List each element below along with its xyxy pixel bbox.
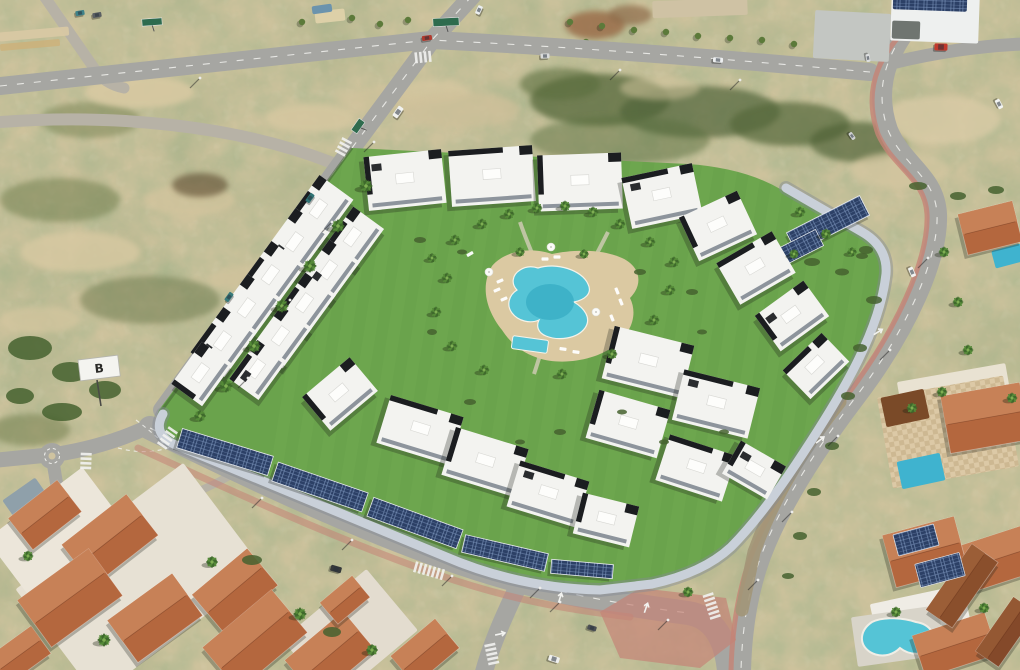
car-glass: [78, 11, 82, 15]
building-parapet-corner: [519, 145, 533, 155]
billboard-logo-letter: B: [94, 361, 105, 376]
streetlight: [739, 79, 742, 82]
car-glass: [716, 58, 721, 62]
crosswalk-bar: [80, 466, 91, 469]
bush: [686, 289, 698, 295]
bush: [414, 237, 426, 243]
bush: [617, 410, 627, 415]
roundabout: [39, 443, 65, 469]
bush: [909, 182, 927, 190]
bush: [554, 429, 566, 435]
bush: [950, 192, 966, 200]
roof-pergola: [571, 175, 589, 186]
bush: [853, 344, 867, 352]
streetlight: [247, 377, 250, 380]
building-parapet-corner: [608, 153, 621, 162]
crosswalk-bar: [80, 462, 91, 465]
streetlight: [791, 511, 794, 514]
bush: [859, 246, 873, 254]
orchard-tree: [377, 21, 383, 27]
parasol-pole: [550, 246, 552, 248]
orchard-tree: [299, 19, 305, 25]
building-parapet-corner: [428, 149, 442, 159]
sun-lounger: [542, 257, 549, 260]
bush: [804, 258, 820, 266]
orchard-tree: [759, 37, 765, 43]
bush: [515, 440, 525, 445]
bush: [793, 532, 807, 540]
apartment-building: [443, 145, 536, 211]
crosswalk-bar: [81, 457, 92, 460]
sign-panel: [433, 17, 459, 26]
car: [933, 43, 948, 52]
streetlight: [351, 539, 354, 542]
bush: [866, 296, 882, 304]
orchard-tree: [631, 27, 637, 33]
orchard-tree: [695, 33, 701, 39]
orchard-tree: [349, 15, 355, 21]
streetlight: [451, 575, 454, 578]
orchard-tree: [599, 23, 605, 29]
car-glass: [938, 44, 944, 50]
orchard-tree: [405, 17, 411, 23]
ground-slab: [892, 21, 921, 40]
terrain-blob: [80, 276, 220, 324]
bush: [8, 336, 52, 360]
car-glass: [543, 54, 547, 58]
orchard-tree: [663, 29, 669, 35]
roof-pergola: [395, 172, 414, 184]
bush: [988, 186, 1004, 194]
orchard-tree: [567, 19, 573, 25]
bush: [782, 573, 794, 579]
bush: [89, 381, 121, 399]
bush: [634, 269, 646, 275]
car-glass: [425, 36, 430, 40]
bush: [841, 392, 855, 400]
streetlight: [261, 497, 264, 500]
streetlight: [373, 141, 376, 144]
streetlight: [199, 77, 202, 80]
bush: [719, 430, 729, 435]
apartment-building: [532, 153, 623, 216]
streetlight: [619, 69, 622, 72]
roof-hatch: [371, 163, 382, 171]
terrain-blob: [620, 76, 700, 100]
bush: [457, 250, 467, 255]
streetlight: [539, 587, 542, 590]
roundabout-island: [49, 453, 56, 460]
ground-slab: [813, 10, 891, 62]
roof-pergola: [483, 168, 502, 179]
bush: [807, 488, 821, 496]
sign-panel: [142, 18, 162, 26]
terrain-blob: [0, 306, 80, 334]
terrain-blob: [520, 68, 600, 100]
streetlight: [289, 299, 292, 302]
bush: [323, 627, 341, 637]
parasol-pole: [595, 311, 597, 313]
orchard-tree: [727, 35, 733, 41]
bush: [6, 388, 34, 404]
parasol-pole: [488, 271, 490, 273]
bush: [427, 329, 437, 335]
car-glass: [95, 13, 99, 17]
terrain-blob: [172, 173, 228, 197]
pool-deep-zone: [526, 284, 574, 320]
apartment-building: [358, 149, 447, 215]
aerial-photo-stage: B: [0, 0, 1020, 670]
bush: [835, 269, 849, 276]
terrain-blob: [20, 232, 140, 272]
streetlight: [837, 435, 840, 438]
terrain-blob: [265, 104, 355, 132]
orchard-tree: [791, 41, 797, 47]
bush: [464, 399, 476, 405]
terrain-blob: [608, 5, 652, 25]
bush: [697, 330, 707, 335]
sun-lounger: [554, 255, 561, 258]
streetlight: [927, 257, 930, 260]
streetlight: [559, 601, 562, 604]
crosswalk-bar: [81, 453, 92, 456]
bush: [42, 403, 82, 421]
streetlight: [757, 579, 760, 582]
streetlight: [889, 349, 892, 352]
streetlight: [667, 619, 670, 622]
terrain-blob: [0, 178, 120, 222]
aerial-scene: B: [0, 0, 1020, 670]
bush: [659, 440, 669, 445]
streetlight: [331, 221, 334, 224]
bush: [242, 555, 262, 565]
bush: [825, 442, 839, 450]
